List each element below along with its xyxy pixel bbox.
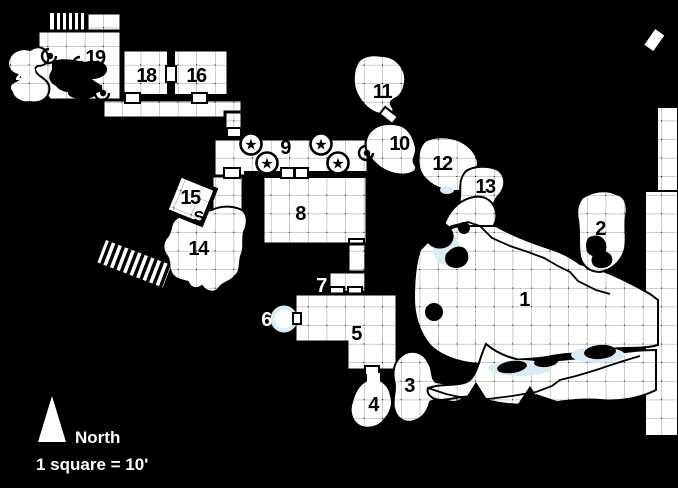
- star-glyph: ★: [260, 155, 273, 173]
- room-8: [263, 176, 367, 244]
- east-passage-north: [657, 107, 678, 195]
- passage-5-4: [367, 373, 380, 383]
- room-label-12: 12: [432, 153, 453, 175]
- star-pillar-icon: ★: [241, 134, 262, 155]
- star-glyph: ★: [314, 136, 327, 154]
- pillar-blob: [425, 303, 443, 321]
- room-label-16: 16: [186, 65, 207, 87]
- star-glyph: ★: [331, 155, 344, 173]
- room-label-7: 7: [316, 275, 327, 297]
- room-label-15: 15: [180, 187, 201, 209]
- room-label-18: 18: [136, 65, 157, 87]
- secret-door-icon: S: [194, 209, 205, 226]
- room-label-1: 1: [519, 289, 530, 311]
- double-door-9-8-left: [281, 168, 294, 178]
- rock-blob-room2: [592, 251, 613, 268]
- water-patch: [440, 186, 454, 194]
- corridor-below-18-16: [103, 100, 242, 118]
- dungeon-map: ★ ★ ★ ★: [0, 0, 678, 488]
- rock-blob: [458, 222, 470, 234]
- double-door-9-8-right: [295, 168, 308, 178]
- room-label-9: 9: [280, 137, 291, 159]
- room-label-13: 13: [475, 176, 496, 198]
- star-pillar-icon: ★: [328, 153, 349, 174]
- star-pillar-icon: ★: [257, 153, 278, 174]
- room-label-20: 20: [15, 63, 36, 85]
- room-label-8: 8: [295, 203, 306, 225]
- dungeon-map-page: ★ ★ ★ ★: [0, 0, 678, 488]
- room-label-2: 2: [595, 218, 606, 240]
- door-18-corridor: [125, 93, 140, 103]
- door-16-corridor: [192, 93, 207, 103]
- room-label-14: 14: [188, 238, 210, 260]
- north-label: North: [75, 428, 120, 447]
- room-label-6: 6: [261, 309, 272, 331]
- door-18-16: [166, 66, 176, 82]
- star-glyph: ★: [244, 136, 257, 154]
- room-6: [275, 310, 294, 329]
- room-label-5: 5: [351, 323, 362, 345]
- scale-label: 1 square = 10': [36, 455, 148, 474]
- door-corridor-9: [227, 128, 241, 137]
- room-label-10: 10: [389, 133, 410, 155]
- room-label-11: 11: [373, 81, 393, 103]
- star-pillar-icon: ★: [311, 134, 332, 155]
- room-label-19: 19: [85, 47, 106, 69]
- door-9-corridor-south: [224, 168, 240, 178]
- door-6-5: [293, 313, 301, 324]
- room-label-3: 3: [404, 375, 415, 397]
